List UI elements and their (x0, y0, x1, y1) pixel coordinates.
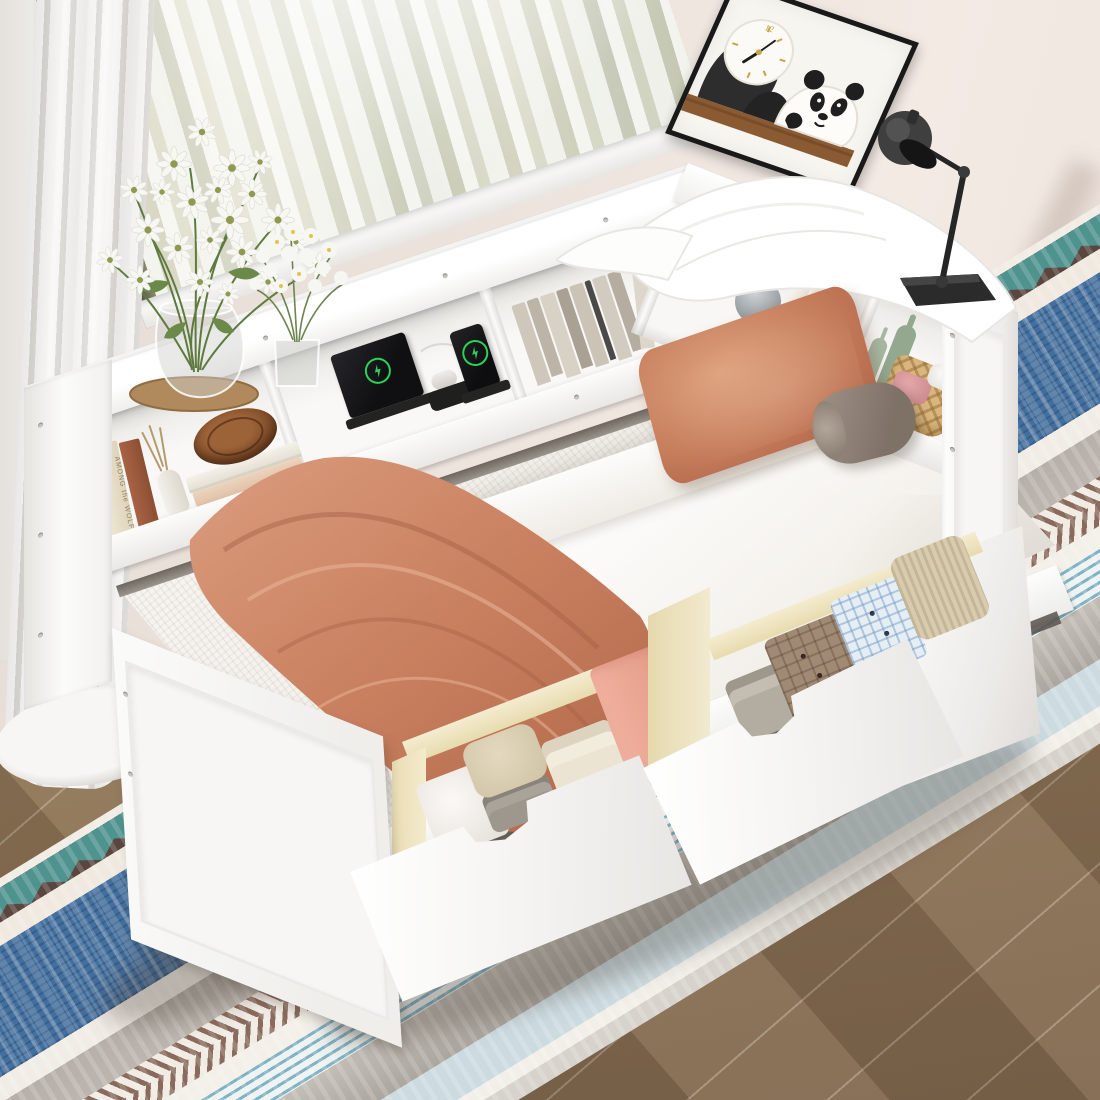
shirt-button (884, 630, 891, 637)
white-flower-puffs (249, 223, 348, 293)
glass-cylinder-vase (275, 340, 319, 386)
charging-icon (459, 337, 492, 370)
screw-dot (848, 244, 854, 250)
screw-dot (603, 217, 609, 223)
shirt-button (816, 672, 823, 679)
screw-dot (442, 273, 448, 279)
screw-dot (38, 532, 43, 539)
charging-icon (361, 354, 394, 387)
screw-dot (38, 632, 43, 639)
small-flower-vase (233, 198, 365, 398)
screw-dot (38, 422, 43, 429)
shirt-button (869, 610, 876, 617)
bedroom-product-photo: 12 (0, 0, 1100, 1100)
desk-lamp (858, 92, 1028, 327)
screw-dot (735, 202, 741, 208)
screw-dot (574, 394, 580, 400)
lightning-bolt-icon (469, 345, 482, 360)
lightning-bolt-icon (372, 363, 385, 378)
screw-dot (327, 476, 333, 482)
shirt-button (800, 653, 807, 660)
